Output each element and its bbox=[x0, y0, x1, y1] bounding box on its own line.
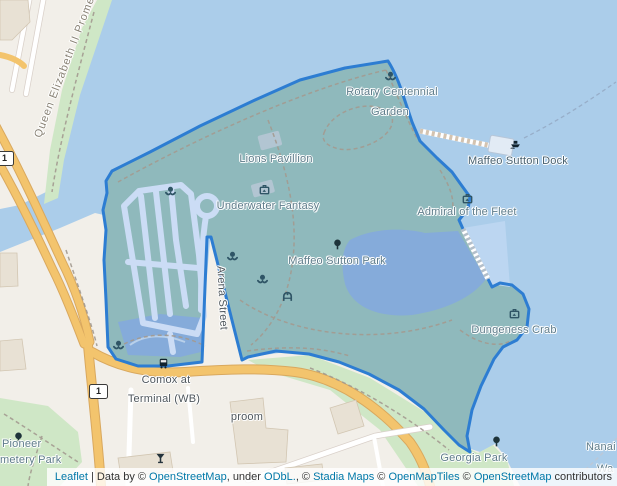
label-nanaimo-partial: Nanai bbox=[586, 441, 616, 453]
openmaptiles-link[interactable]: OpenMapTiles bbox=[388, 471, 459, 483]
attribution-text: contributors bbox=[551, 471, 612, 483]
label-georgia-park: Georgia Park bbox=[440, 452, 507, 464]
openstreetmap-link[interactable]: OpenStreetMap bbox=[474, 471, 552, 483]
highway-shield: 1 bbox=[89, 384, 108, 399]
leaflet-link[interactable]: Leaflet bbox=[55, 471, 88, 483]
openstreetmap-link[interactable]: OpenStreetMap bbox=[149, 471, 227, 483]
label-maffeo-sutton-park: Maffeo Sutton Park bbox=[288, 255, 386, 267]
label-pioneer: Pioneer bbox=[2, 438, 41, 450]
label-dungeness-crab: Dungeness Crab bbox=[471, 324, 556, 336]
map-tiles bbox=[0, 0, 617, 486]
label-maffeo-sutton-dock: Maffeo Sutton Dock bbox=[468, 155, 568, 167]
attribution-text: , under bbox=[227, 471, 264, 483]
label-comox-at: Comox at bbox=[142, 374, 191, 386]
attribution-text: © bbox=[460, 471, 474, 483]
attribution-bar: Leaflet | Data by © OpenStreetMap, under… bbox=[47, 468, 617, 486]
label-taproom-partial: proom bbox=[231, 411, 263, 423]
attribution-text: | Data by © bbox=[88, 471, 149, 483]
attribution-text: © bbox=[374, 471, 388, 483]
highway-shield: 1 bbox=[0, 151, 14, 166]
label-rotary-centennial-garden-2: Garden bbox=[371, 106, 409, 118]
label-cemetery-park: metery Park bbox=[0, 454, 62, 466]
stadia-maps-link[interactable]: Stadia Maps bbox=[313, 471, 374, 483]
label-lions-pavillion: Lions Pavillion bbox=[239, 153, 312, 165]
label-rotary-centennial-garden: Rotary Centennial bbox=[346, 86, 437, 98]
map-canvas[interactable]: 1 1 Rotary Centennial Garden Lions Pavil… bbox=[0, 0, 617, 486]
odbl-link[interactable]: ODbL. bbox=[264, 471, 296, 483]
label-underwater-fantasy: Underwater Fantasy bbox=[217, 200, 320, 212]
attribution-text: , © bbox=[296, 471, 313, 483]
label-admiral-of-the-fleet: Admiral of the Fleet bbox=[417, 206, 516, 218]
label-terminal-wb: Terminal (WB) bbox=[128, 393, 200, 405]
